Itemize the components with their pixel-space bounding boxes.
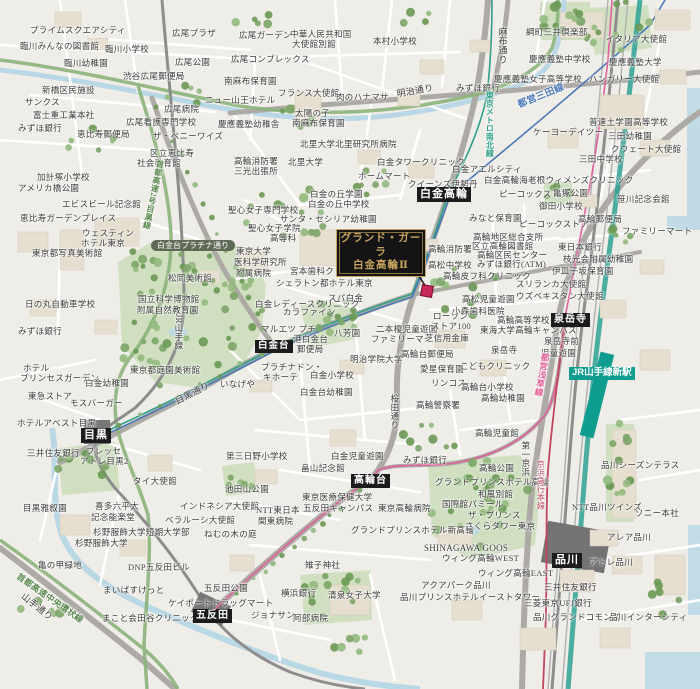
map-label: 亀の甲緑地 [38, 561, 82, 570]
map-label: ファミリーマート [622, 227, 692, 236]
map-label: 新橋区民施設 [42, 86, 95, 95]
map-label: 枝光会附属幼稚園 [563, 255, 633, 264]
station-badge: 高輪台 [351, 474, 390, 488]
map-label: NTT東日本 [256, 506, 300, 515]
map-label: 白金小学校 [310, 371, 354, 380]
map-label: 東京大学 [236, 247, 271, 256]
map-label: ピーコックストア [519, 220, 589, 229]
map-label: 都営三田線 [517, 84, 566, 112]
map-label: 三井住友銀行 [27, 449, 80, 458]
map-label: 恵比寿郵便局 [77, 130, 130, 139]
map-label: 東日本銀行 [558, 243, 602, 252]
map-label: 国際館パミール [442, 500, 504, 509]
map-label: アメリカ橋公園 [18, 184, 79, 193]
map-label: 池田山公園 [225, 485, 269, 494]
map-label: クウェート大使館 [611, 145, 681, 154]
map-label: 品川シーズンテラス [601, 461, 680, 470]
map-label: 高輪台郵便局 [401, 350, 454, 359]
map-label: ストア100 [431, 322, 471, 331]
map-label: タイ大使館 [133, 477, 177, 486]
map-label: グランドプリンスホテル新高輪 [351, 526, 474, 535]
map-label: 広尾看護専門学校 [126, 118, 196, 127]
map-label: 臨川小学校 [105, 45, 149, 54]
map-label: ケイポートドラッグマート [168, 599, 273, 608]
map-label: こどもクリニック [460, 362, 530, 371]
map-label: 高松中学校 [428, 261, 472, 270]
map-label: モスバーガー [70, 399, 123, 408]
map-label: みずほ銀行 [18, 124, 62, 133]
map-label: ハンガリー大使館 [589, 75, 659, 84]
map-label: 高輪消防署 [234, 157, 278, 166]
map-label: ニュー山王ホテル [205, 96, 275, 105]
map-label: NTT品川ツインズ [572, 503, 642, 512]
map-label: ホームマート [358, 172, 411, 181]
map-label: 明治学院大学 [350, 355, 403, 364]
map-label: 綱町三井倶楽部 [526, 28, 588, 37]
map-label: 東京都写真美術館 [32, 249, 102, 258]
map-label: 富士重工業本社 [33, 111, 95, 120]
map-label: 高輪消防署 [428, 245, 472, 254]
map-label: 白金高輪海老根ウィメンズクリニック [484, 176, 633, 185]
map-label: 伊皿子坂保育園 [552, 267, 614, 276]
map-label: ザ・プリンス [468, 511, 521, 520]
map-label: みずほ銀行 [18, 327, 62, 336]
map-label: 恵比寿ガーデンプレイス [20, 214, 116, 223]
label-layer: プライムスクエアシティ臨川みんなの図書館臨川小学校臨川幼稚園広尾プラザ広尾ガーデ… [0, 0, 700, 689]
road-name-badge: 白金台プラチナ通り [151, 240, 235, 251]
map-label: 和風別館 [478, 490, 513, 499]
map-label: 目黒雅叙園 [23, 504, 67, 513]
map-label: フランス大使館 [278, 89, 339, 98]
map-label: 芝信用金庫 [425, 334, 469, 343]
map-label: まいばすけっと [103, 586, 165, 595]
map-label: 明治通り [396, 84, 434, 100]
map-label: 臨川幼稚園 [64, 59, 108, 68]
map-label: 東京医療保健大学 [302, 493, 372, 502]
map-label: スリランカ大使館 [516, 280, 586, 289]
map-label: 東急ストア [28, 392, 72, 401]
map-label: インドネシア大使館 [180, 502, 259, 511]
map-label: 広尾ガーデン [239, 31, 292, 40]
map-label: ソニー本社 [635, 509, 679, 518]
map-label: DNP五反田ビル [128, 563, 190, 572]
map-label: 慶應義塾女子高等学校 [494, 75, 582, 84]
map-label: 白金の丘中学校 [308, 200, 370, 209]
map-label: 白金台幼稚園 [300, 388, 353, 397]
map-label: 東海大学高輪キャンパス [480, 326, 577, 335]
map-label: 都営浅草線 [533, 352, 549, 397]
map-label: 三田幼稚園 [608, 132, 652, 141]
map-label: 品川プリンスホテルイーストタワー [400, 593, 540, 602]
map-label: アクアパーク品川 [421, 581, 491, 590]
map-label: 附属自然教育園 [137, 306, 199, 315]
map-label: 横浜銀行 [281, 589, 316, 598]
map-label: 第三日野小学校 [226, 452, 288, 461]
map-label: 畠山記念館 [301, 464, 345, 473]
map-label: みずほ銀行 [403, 456, 447, 465]
map-label: 白金幼稚園 [85, 379, 129, 388]
map-label: 白金児童遊園 [331, 452, 384, 461]
map-label: JR山手線 [174, 314, 183, 350]
station-badge: 泉岳寺 [551, 313, 590, 327]
station-badge: 目黒 [81, 428, 111, 443]
map-label: 高輪警察署 [416, 401, 460, 410]
map-label: 加計塚小学校 [37, 173, 90, 182]
map-label: 臨川みんなの図書館 [20, 42, 99, 51]
map-label: 太陽の子 [295, 109, 330, 118]
map-label: 北里大学北里研究所病院 [300, 140, 397, 149]
map-label: 杉野服飾大学 [75, 539, 128, 548]
property-name-line2: 白金高輪Ⅱ [337, 259, 425, 273]
map-label: 高等科 [270, 234, 296, 243]
map-label: 泉岳寺 [491, 346, 517, 355]
map-label: 南麻布保育園 [224, 77, 277, 86]
map-label: 目黒通り [174, 381, 211, 406]
map-label: 京浜急行本線 [536, 460, 544, 510]
map-label: アトレ品川 [589, 558, 633, 567]
map-label: ケーヨーデイツー [533, 128, 603, 137]
map-label: ホテルアベスト目黒 [17, 419, 96, 428]
map-label: 大使館別館 [292, 40, 336, 49]
map-label: 区立恵比寿 [150, 149, 194, 158]
map-label: 五反田公園 [204, 584, 248, 593]
map-label: ウズベキスタン大使館 [516, 292, 604, 301]
station-badge: JR山手線新駅 [569, 367, 635, 380]
map-label: 高輪高等学校 [497, 316, 550, 325]
map-label: エビスビール記念館 [62, 200, 141, 209]
map-label: みずほ銀行(ATM) [477, 260, 546, 269]
map-label: 医科学研究所 [234, 258, 287, 267]
map-label: 三菱東京UFJ銀行 [524, 599, 592, 608]
map-label: 高輪公園 [479, 464, 514, 473]
map-label: まこと会田谷クリニック [102, 614, 199, 623]
map-label: 高松児童遊園 [462, 295, 515, 304]
station-badge: 品川 [552, 553, 582, 568]
map-label: ウィング高輪WEST [442, 554, 519, 563]
map-label: 高輪幼稚園 [481, 394, 525, 403]
map-label: 広尾病院 [164, 105, 199, 114]
map-label: 郵便局 [297, 345, 323, 354]
map-label: 清泉女子大学 [328, 591, 381, 600]
station-badge: 白金高輪 [417, 187, 471, 202]
map-label: 喜多六平太 [95, 502, 139, 511]
map-label: カラファイン [283, 308, 336, 317]
map-label: 泉岳寺前 [544, 337, 579, 346]
map-label: 品川グランドコモンズ [533, 613, 621, 622]
map-label: ベラルーシ大使館 [165, 516, 235, 525]
map-label: 阿部病院 [293, 614, 328, 623]
map-label: 高輪台小学校 [461, 383, 514, 392]
map-label: 愛星保育園 [420, 365, 464, 374]
map-label: ホテル東京 [81, 239, 125, 248]
map-label: 東京メトロ南北線 [485, 91, 493, 157]
map-label: 慶應義塾大学 [609, 58, 662, 67]
map-label: キホーテ [263, 373, 298, 382]
map-label: 麻布通り [497, 27, 506, 64]
map-label: 桜田通り [390, 394, 399, 429]
map-label: ローソン [433, 312, 468, 321]
map-label: 本村小学校 [373, 37, 417, 46]
map-label: プレッセ [86, 447, 121, 456]
map-label: 首都高速2号目黒線 [141, 159, 164, 230]
map-label: さくらタワー東京 [465, 522, 535, 531]
map-label: 広尾コンプレックス [231, 55, 310, 64]
map-label: 御田小学校 [539, 202, 583, 211]
map-label: 北里大学 [288, 158, 323, 167]
map-label: 普連土学園高等学校 [589, 118, 668, 127]
map-label: アレア品川 [607, 533, 651, 542]
map-label: 高輪児童館 [475, 429, 519, 438]
map-label: 亀塚公園 [553, 189, 588, 198]
map-label: 南麻布保育園 [292, 119, 345, 128]
map-label: 三光出張所 [234, 167, 278, 176]
map-label: プライムスクエアシティ [30, 26, 126, 35]
property-callout: グランド・ガーラ 白金高輪Ⅱ [336, 229, 426, 277]
map-label: 附属病院 [236, 269, 271, 278]
map-label: ホテル [23, 364, 49, 373]
map-label: 品川インターシティ [609, 613, 688, 622]
map-label: マルエツ プチ [261, 325, 316, 334]
map-label: 三井住友銀行 [544, 583, 597, 592]
map-label: ねむの木の庭 [204, 530, 257, 539]
map-label: 東京都庭園美術館 [130, 366, 200, 375]
map-label: ウェスティン [82, 229, 134, 238]
map-label: ザ・ペニーワイズ [153, 132, 223, 141]
map-label: 広尾プラザ [172, 29, 216, 38]
map-label: 慶應義塾中学校 [529, 55, 591, 64]
map-label: 広尾公園 [175, 58, 210, 67]
map-label: 東京高輪病院 [378, 504, 431, 513]
map-label: 肉のハナマサ [336, 93, 389, 102]
map-label: 松岡美術館 [168, 274, 212, 283]
property-name-line1: グランド・ガーラ [337, 232, 425, 259]
map-label: 五反田キャンパス [303, 504, 373, 513]
property-marker [420, 284, 434, 298]
map-label: シェラトン都ホテル東京 [276, 279, 373, 288]
map-label: 渋谷広尾郵便局 [123, 72, 185, 81]
map-label: 白金の丘学園 [310, 190, 363, 199]
map-label: 港白金台 [293, 335, 328, 344]
map-label: 八芳園 [334, 329, 360, 338]
map-label: 聖心女子学院 [248, 224, 301, 233]
map-label: ウィング高輪EAST [478, 569, 553, 578]
map-label: 笹川記念会館 [617, 195, 670, 204]
map-label: サンクス [25, 98, 60, 107]
map-label: 第一京浜 [521, 441, 530, 476]
map-label: 日の丸自動車学校 [25, 300, 95, 309]
area-map: プライムスクエアシティ臨川みんなの図書館臨川小学校臨川幼稚園広尾プラザ広尾ガーデ… [0, 0, 700, 689]
map-label: みなと保育園 [469, 214, 522, 223]
map-label: 記念能楽堂 [91, 513, 135, 522]
map-label: 杉野服飾大学短期大学部 [93, 528, 190, 537]
map-label: 中華人民共和国 [290, 30, 352, 39]
map-label: いなげや [220, 380, 255, 389]
map-label: アトレ目黒2 [80, 457, 129, 466]
station-badge: 白金台 [255, 340, 293, 353]
map-label: 白金アエルシティ [452, 165, 522, 174]
map-label: ジョナサン [251, 611, 295, 620]
map-label: イタリア大使館 [606, 35, 667, 44]
map-label: 雉子神社 [305, 561, 340, 570]
map-label: 関東病院 [258, 517, 293, 526]
map-label: 高輪皮フ科クリニック [443, 272, 531, 281]
map-label: 三田中学校 [579, 155, 623, 164]
map-label: 慶應義塾幼稚舎 [218, 120, 280, 129]
map-label: グランドプリンスホテル高輪 [435, 478, 549, 487]
map-label: 国立科学博物館 [138, 295, 200, 304]
station-badge: 五反田 [193, 609, 232, 623]
